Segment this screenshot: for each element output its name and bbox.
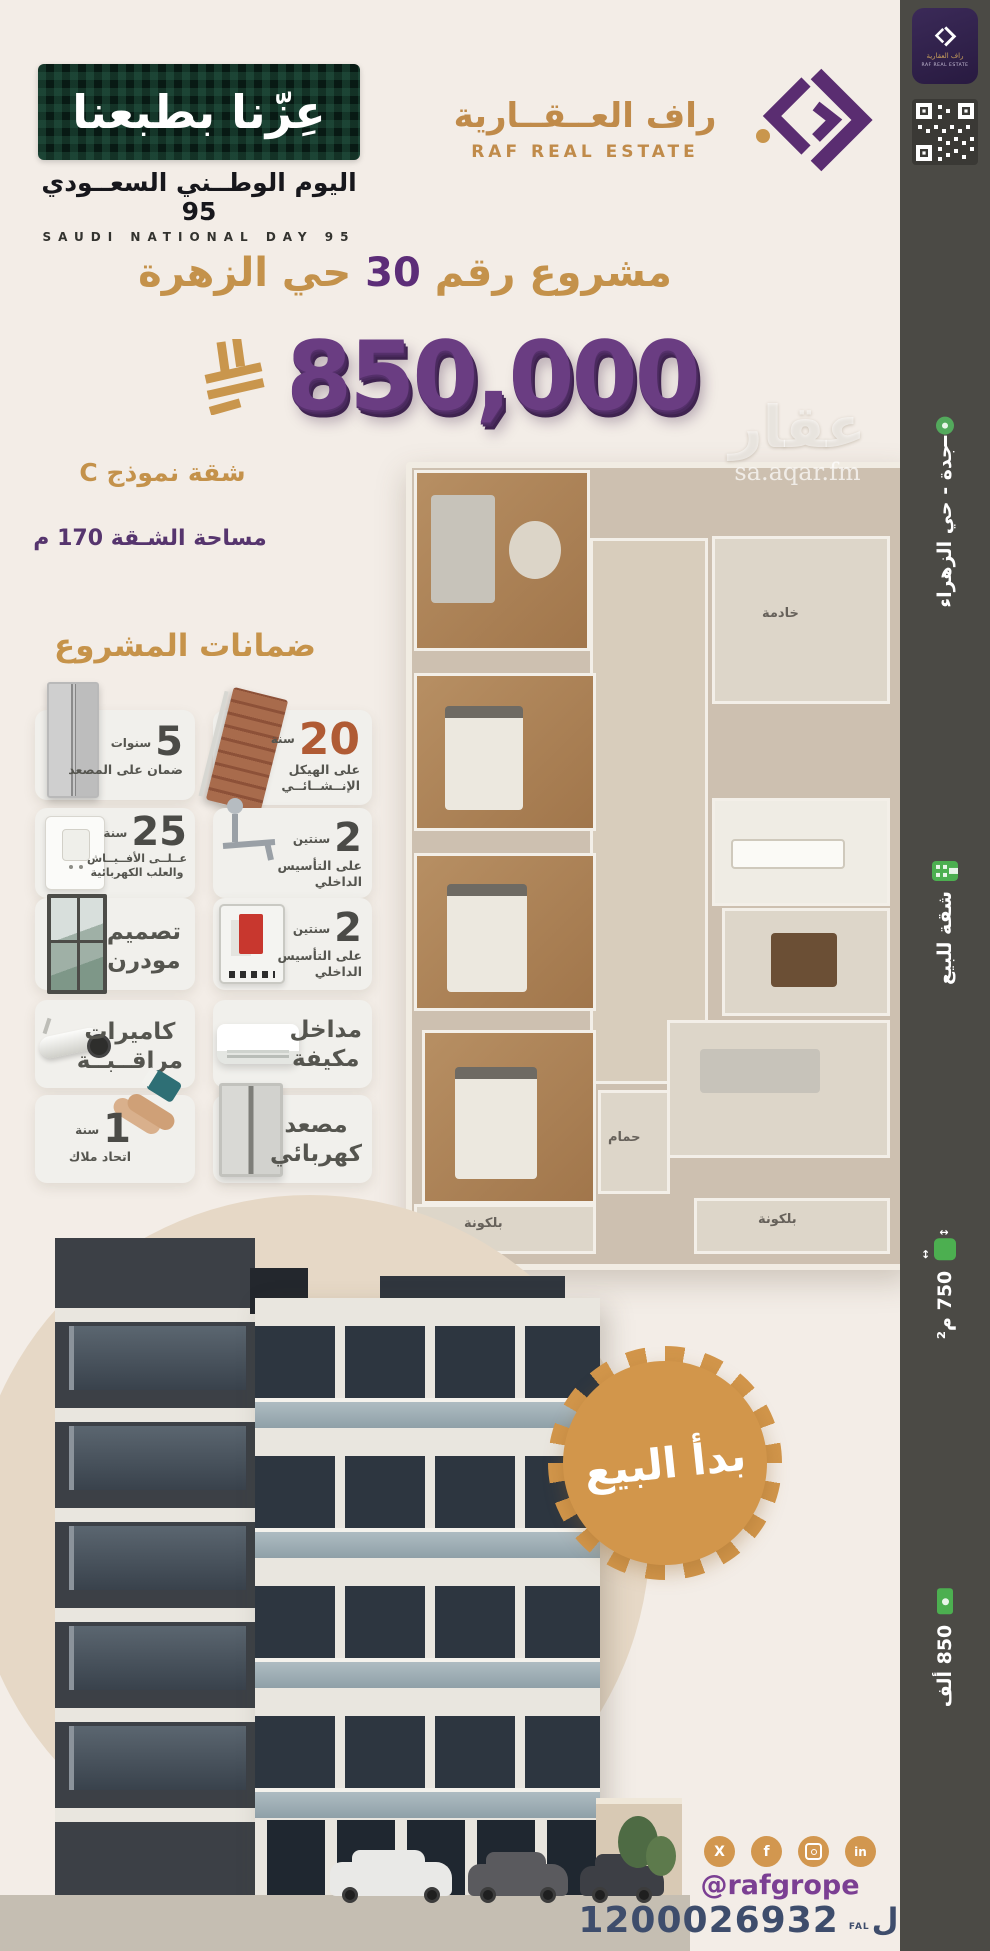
phone-row: 1200026932 FAL فــال: [630, 1900, 900, 1941]
plan-label-maid: خادمة: [762, 606, 799, 621]
guarantee-unit: سنة: [271, 732, 295, 746]
sidebar-location: جدة - حي الزهراء: [934, 416, 956, 607]
guarantee-line1: تصميم: [107, 918, 181, 947]
guarantee-line2: الإنــشــائــي: [271, 778, 360, 794]
guarantee-unit: سنة: [75, 1123, 99, 1137]
bed-furniture: [445, 706, 523, 810]
guarantee-line1: على التأسيس: [278, 858, 362, 874]
guarantee-line2: مودرن: [107, 947, 181, 976]
sidebar-price: 850 ألف: [934, 1589, 956, 1708]
kitchen-island: [731, 839, 845, 869]
guarantee-card-modern-design: تصميم مودرن: [35, 898, 195, 990]
guarantee-card-sockets: 25 سنة عــلــى الأفــيــاش والعلب الكهرب…: [35, 808, 195, 898]
breaker-panel-image: [219, 904, 285, 984]
badge-brand-ar: راف العقارية: [926, 52, 963, 60]
guarantee-line1: اتحاد ملاك: [69, 1149, 131, 1165]
price-amount: 850,000: [286, 322, 698, 432]
guarantee-card-elevator-warranty: 5 سنوات ضمان على المصعد: [35, 710, 195, 800]
guarantee-card-owners-union: 1 سنة اتحاد ملاك: [35, 1095, 195, 1183]
guarantee-card-electric-elevator: مصعد كهربائي: [213, 1095, 372, 1183]
guarantee-unit: سنوات: [111, 736, 151, 750]
rug-furniture: [509, 521, 561, 579]
project-number: 30: [365, 250, 421, 296]
banknote-icon: [937, 1589, 953, 1615]
plan-label-bathroom: حمام: [608, 1130, 641, 1145]
project-title: مشروع رقم 30 حي الزهرة: [130, 250, 680, 296]
guarantee-line2: مكيفة: [289, 1045, 362, 1074]
guarantee-unit: سنتين: [293, 922, 330, 936]
raf-logo-icon: [756, 62, 874, 184]
guarantee-line1: عــلــى الأفــيــاش: [87, 852, 187, 866]
guarantee-line2: الداخلي: [278, 874, 362, 890]
brand-name-en: RAF REAL ESTATE: [425, 142, 745, 162]
guarantee-line2: والعلب الكهربائية: [87, 866, 187, 880]
dining-table: [771, 933, 837, 987]
sofa-furniture: [700, 1049, 820, 1093]
ac-unit-image: [217, 1024, 299, 1064]
facebook-icon[interactable]: f: [751, 1836, 782, 1867]
plan-family-room: [667, 1020, 890, 1158]
sidebar-area: 750 م²: [934, 1239, 956, 1340]
sale-started-label: بدأ البيع: [582, 1430, 748, 1496]
national-day-title-ar: اليوم الوطــني السعــودي 95: [38, 168, 360, 226]
unit-model-label: شقة نموذج C: [55, 458, 270, 487]
project-title-post: حي الزهرة: [138, 250, 351, 296]
guarantee-value: 20: [299, 718, 360, 762]
guarantee-value: 25: [131, 812, 187, 852]
floor-plan-image: خادمة حمام بلكونة بلكونة: [406, 462, 910, 1270]
aqar-watermark-brand: عقار: [705, 398, 890, 456]
guarantee-line1: على التأسيس: [278, 948, 362, 964]
plan-hallway: [590, 538, 708, 1084]
plumbing-image: [217, 794, 281, 880]
raf-app-badge: راف العقارية RAF REAL ESTATE: [912, 8, 978, 84]
unit-area-label: مساحة الشـقة 170 م: [30, 526, 270, 551]
guarantee-value: 1: [103, 1109, 131, 1149]
plan-living-room: [414, 470, 590, 651]
building-tower: [55, 1238, 255, 1905]
area-dimensions-icon: [934, 1239, 956, 1261]
sidebar-listing-type: شقة للبيع: [932, 861, 958, 985]
listing-sidebar: راف العقارية RAF REAL ESTATE جدة - حي ال…: [900, 0, 990, 1951]
bed-furniture: [455, 1067, 537, 1179]
sidebar-area-label: 750 م²: [934, 1271, 956, 1340]
guarantee-card-electrical: 2 سنتين على التأسيس الداخلي: [213, 898, 372, 990]
plant: [646, 1836, 676, 1876]
guarantee-card-structure: 20 سنة على الهيكل الإنــشــائــي: [213, 710, 372, 805]
national-day-title-en: SAUDI NATIONAL DAY 95: [38, 230, 360, 244]
poster-canvas: عِزّنا بطبعنا اليوم الوطــني السعــودي 9…: [0, 0, 990, 1951]
guarantee-value: 2: [334, 818, 362, 858]
x-twitter-icon[interactable]: X: [704, 1836, 735, 1867]
guarantees-heading: ضمانات المشروع: [50, 628, 320, 664]
plan-kitchen: [712, 798, 890, 906]
plan-dining: [722, 908, 890, 1016]
guarantee-line1: ضمان على المصعد: [68, 762, 183, 778]
national-day-logo: عِزّنا بطبعنا اليوم الوطــني السعــودي 9…: [38, 64, 360, 244]
instagram-icon[interactable]: [798, 1836, 829, 1867]
plan-bedroom-1: [414, 673, 596, 831]
social-icons-row: X f in: [704, 1836, 876, 1867]
car: [468, 1864, 568, 1896]
bed-furniture: [447, 884, 527, 992]
guarantee-card-plumbing: 2 سنتين على التأسيس الداخلي: [213, 808, 372, 898]
sar-currency-icon: [202, 339, 266, 415]
guarantee-line2: الداخلي: [278, 964, 362, 980]
location-pin-icon: [936, 416, 954, 434]
sidebar-price-label: 850 ألف: [934, 1625, 956, 1708]
sofa-furniture: [431, 495, 495, 603]
guarantee-value: 2: [334, 908, 362, 948]
guarantee-line1: مصعد: [270, 1111, 362, 1140]
window-image: [47, 894, 107, 994]
badge-brand-en: RAF REAL ESTATE: [922, 63, 969, 68]
sidebar-listing-type-label: شقة للبيع: [934, 891, 956, 985]
national-day-slogan: عِزّنا بطبعنا: [72, 85, 325, 139]
guarantee-value: 5: [155, 722, 183, 762]
phone-number[interactable]: 1200026932: [578, 1900, 839, 1941]
guarantee-line2: مراقــبــة: [77, 1047, 183, 1076]
linkedin-icon[interactable]: in: [845, 1836, 876, 1867]
sidebar-location-label: جدة - حي الزهراء: [934, 444, 956, 607]
guarantee-line1: على الهيكل: [271, 762, 360, 778]
plan-bedroom-2: [414, 853, 596, 1011]
project-title-pre: مشروع رقم: [435, 250, 672, 296]
guarantee-line2: كهربائي: [270, 1140, 362, 1169]
raf-badge-icon: [933, 25, 957, 49]
fal-logo-en: FAL: [849, 1922, 870, 1932]
guarantee-unit: سنة: [103, 826, 127, 840]
brand-wordmark: راف العــقــارية RAF REAL ESTATE: [425, 96, 745, 162]
sale-started-badge: بدأ البيع: [548, 1346, 782, 1580]
guarantee-line1: مداخل: [289, 1016, 362, 1045]
guarantee-card-ac-entrances: مداخل مكيفة: [213, 1000, 372, 1088]
national-day-emblem: عِزّنا بطبعنا: [38, 64, 360, 160]
building-parapet: [380, 1276, 565, 1300]
car: [330, 1862, 452, 1896]
guarantee-unit: سنتين: [293, 832, 330, 846]
social-handle[interactable]: @rafgrope: [680, 1870, 880, 1901]
qr-code[interactable]: [912, 94, 978, 170]
plan-maid-room: [712, 536, 890, 704]
guarantee-line1: كاميرات: [77, 1018, 183, 1047]
price-row: 850,000: [185, 322, 715, 432]
apartment-building-icon: [932, 861, 958, 881]
brand-name-ar: راف العــقــارية: [425, 96, 745, 136]
plan-bedroom-3: [422, 1030, 596, 1204]
